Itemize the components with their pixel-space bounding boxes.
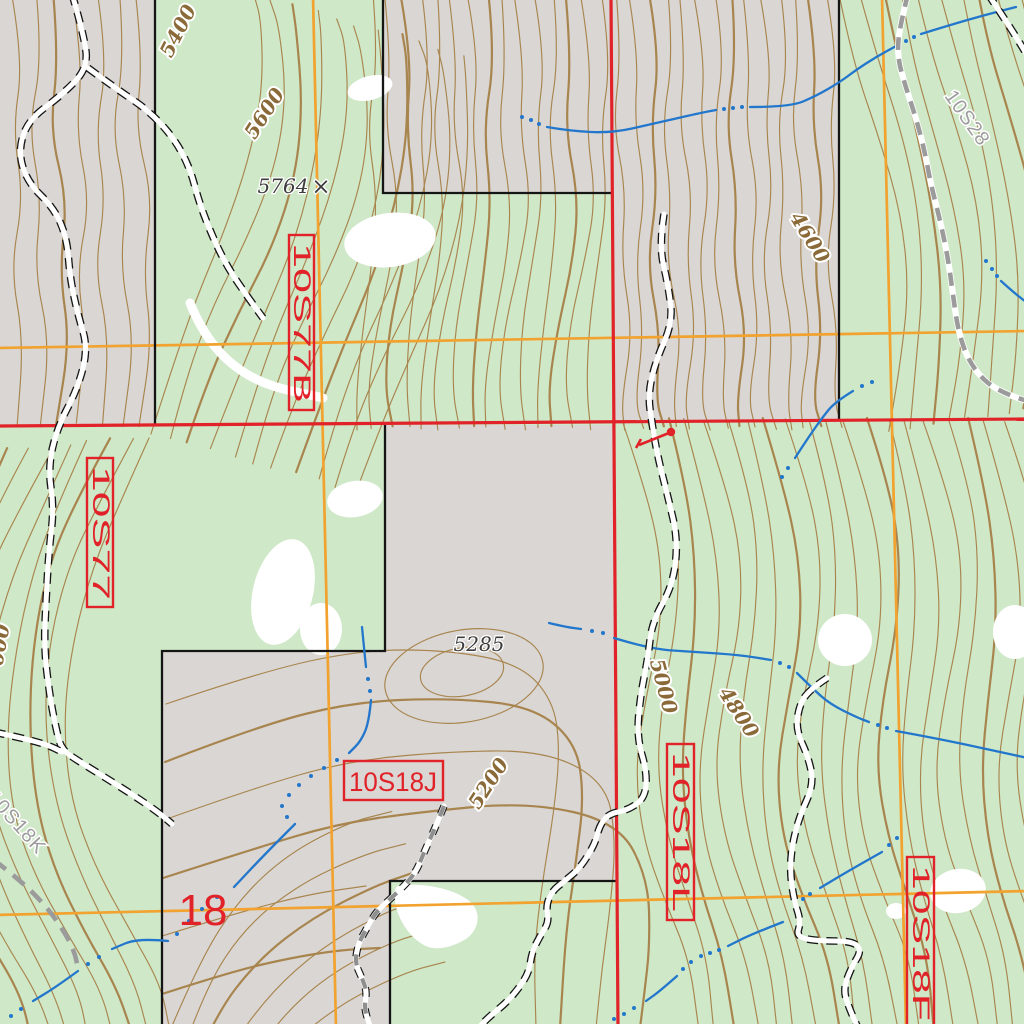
spot-elevation-marker: × xyxy=(311,174,330,200)
section-number: 18 xyxy=(179,886,228,935)
road-box-label-10s77: 10S77 xyxy=(87,466,114,600)
road-box-label-10s18f: 10S18F xyxy=(907,865,934,1021)
road-box-label-10s18j: 10S18J xyxy=(349,767,437,797)
spot-elevation-5285: 5285 xyxy=(454,632,505,656)
spot-elevation-5764: 5764 xyxy=(258,174,309,198)
road-box-label-10s77b: 10S77B xyxy=(288,243,315,403)
topo-map: 5400 5600 4600 5000 4800 5200 000 5764 ×… xyxy=(0,0,1024,1024)
road-box-label-10s18l: 10S18L xyxy=(667,752,694,912)
topo-map-canvas[interactable]: 5400 5600 4600 5000 4800 5200 000 5764 ×… xyxy=(0,0,1024,1024)
